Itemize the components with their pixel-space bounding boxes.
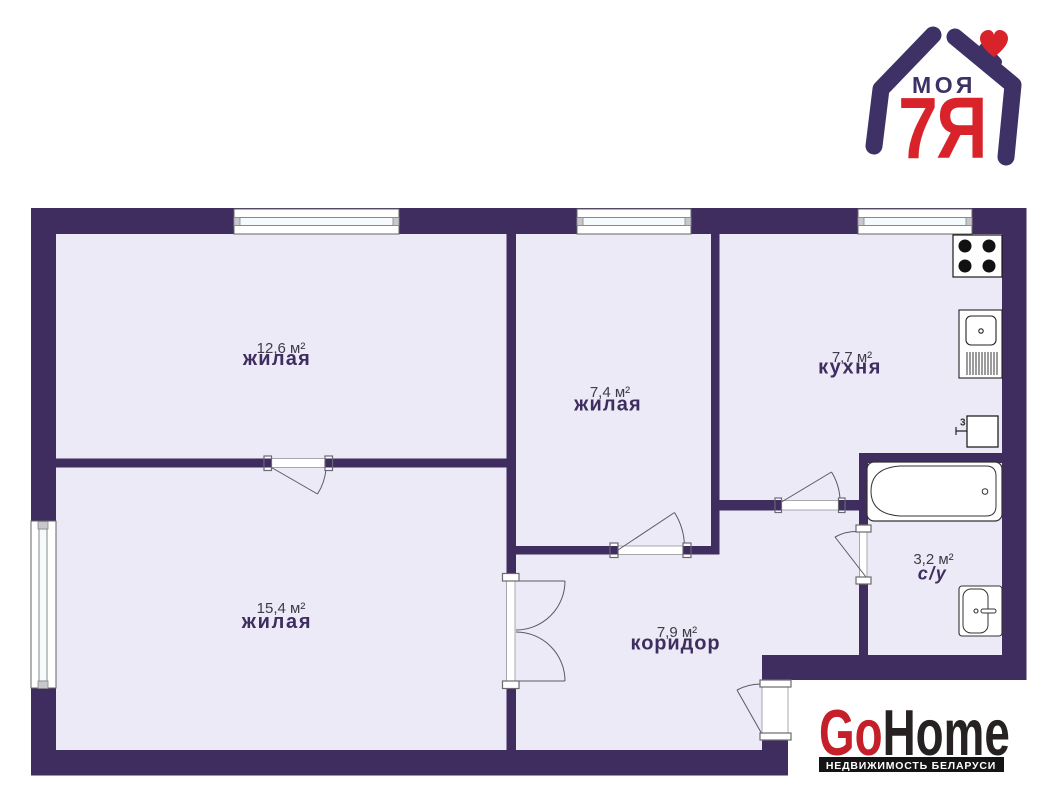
svg-text:жилая: жилая	[573, 394, 642, 416]
svg-text:кухня: кухня	[818, 357, 882, 379]
svg-text:НЕДВИЖИМОСТЬ БЕЛАРУСИ: НЕДВИЖИМОСТЬ БЕЛАРУСИ	[826, 760, 996, 772]
svg-text:3: 3	[960, 418, 966, 429]
svg-text:жилая: жилая	[241, 611, 312, 633]
svg-text:7Я: 7Я	[898, 79, 986, 176]
svg-text:коридор: коридор	[631, 633, 721, 655]
svg-text:с/у: с/у	[918, 564, 948, 584]
svg-text:жилая: жилая	[242, 348, 311, 370]
